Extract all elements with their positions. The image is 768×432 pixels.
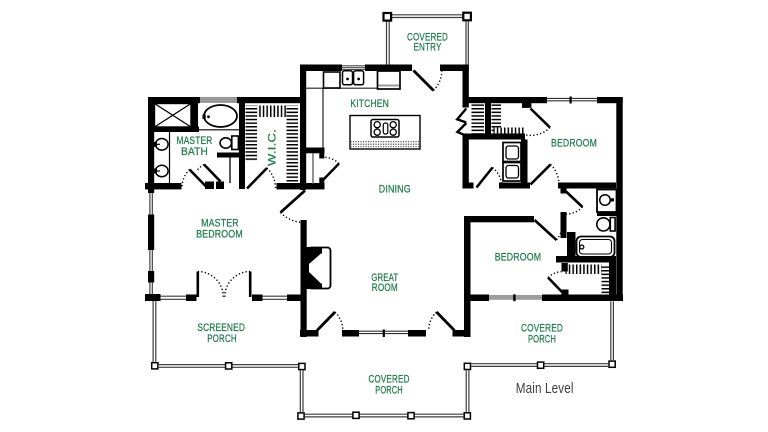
svg-text:BATH: BATH [181, 146, 208, 158]
svg-text:ENTRY: ENTRY [414, 41, 442, 53]
svg-text:PORCH: PORCH [528, 334, 556, 346]
svg-text:PORCH: PORCH [207, 333, 237, 345]
svg-text:Main Level: Main Level [516, 380, 574, 397]
svg-text:BEDROOM: BEDROOM [196, 228, 243, 240]
svg-text:W.I.C.: W.I.C. [267, 129, 279, 166]
svg-text:PORCH: PORCH [375, 384, 403, 396]
svg-text:BEDROOM: BEDROOM [551, 137, 597, 149]
svg-text:KITCHEN: KITCHEN [350, 98, 389, 110]
svg-text:DINING: DINING [379, 184, 411, 196]
svg-text:BEDROOM: BEDROOM [495, 251, 542, 263]
svg-text:ROOM: ROOM [372, 282, 398, 294]
